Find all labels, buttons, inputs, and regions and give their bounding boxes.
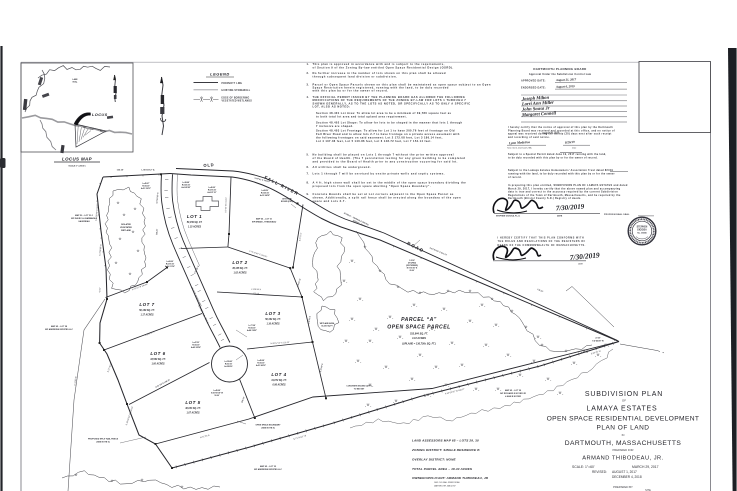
svg-text:1.07 ACRES: 1.07 ACRES <box>186 412 200 414</box>
svg-text:(SEE NOTE 9): (SEE NOTE 9) <box>96 442 109 444</box>
svg-text:August 21, 2017: August 21, 2017 <box>555 77 577 82</box>
svg-text:41,872 SQ. FT.: 41,872 SQ. FT. <box>270 379 287 382</box>
svg-text:OPEN SPACE RESIDENTIAL DEVE: OPEN SPACE RESIDENTIAL DEVELOPMENT <box>547 416 700 423</box>
svg-text:7 inclusive are shaped.: 7 inclusive are shaped. <box>316 124 354 128</box>
svg-text:with this plan by or for the o: with this plan by or for the owner of re… <box>313 89 389 93</box>
svg-text:LOT 4: LOT 4 <box>271 372 286 377</box>
svg-text:WETLAND: WETLAND <box>121 229 132 232</box>
svg-text:running with the land, to be d: running with the land, to be duly record… <box>508 172 615 175</box>
svg-text:PROPERTY LINE: PROPERTY LINE <box>222 83 243 85</box>
svg-text:5.: 5. <box>307 152 309 156</box>
svg-text:3.: 3. <box>307 82 309 86</box>
svg-text:TO BE SET: TO BE SET <box>354 389 365 391</box>
svg-text:LOT 1: LOT 1 <box>187 214 202 219</box>
svg-text:SCALE: 1"=60': SCALE: 1"=60' <box>572 465 595 469</box>
svg-text:Δ=8°21'10": Δ=8°21'10" <box>207 192 216 194</box>
svg-text:20.00': 20.00' <box>410 270 415 272</box>
svg-text:MAP 65 – LOT 28: MAP 65 – LOT 28 <box>51 325 68 328</box>
svg-text:Lot 4 137.36 feet, Lot 5 14: Lot 4 137.36 feet, Lot 5 140.86 feet, Lo… <box>316 139 432 143</box>
svg-text:43,560 SQ. FT.: 43,560 SQ. FT. <box>149 358 166 361</box>
svg-text:1.: 1. <box>307 62 309 66</box>
svg-text:LOT, ALSO AS NOTED:: LOT, ALSO AS NOTED: <box>313 105 351 109</box>
svg-text:EDGE OF BORDERING: EDGE OF BORDERING <box>222 98 250 100</box>
svg-text:All utilities shall be undergr: All utilities shall be underground. <box>313 165 372 169</box>
svg-text:and provided to the Board of H: and provided to the Board of Health prio… <box>313 159 458 163</box>
svg-text:No building shall be placed on: No building shall be placed on Lots 1 th… <box>313 152 454 156</box>
svg-text:Rd: Rd <box>100 131 102 133</box>
svg-text:ZONING DISTRICT: SINGLE RESID: ZONING DISTRICT: SINGLE RESIDENCE B <box>411 448 480 452</box>
svg-text:Fall River Road and to allow l: Fall River Road and to allow lots 2-7 to… <box>316 132 460 136</box>
svg-text:8.: 8. <box>307 180 309 184</box>
svg-text:to be duly recorded with this: to be duly recorded with this plan by or… <box>508 156 598 159</box>
svg-text:through subsequent land divisi: through subsequent land division or subd… <box>313 74 398 78</box>
svg-text:LAMAYA ESTATES: LAMAYA ESTATES <box>587 406 658 413</box>
svg-text:MAP 65 – LOT 32: MAP 65 – LOT 32 <box>260 465 277 468</box>
svg-text:11.8 ACRES: 11.8 ACRES <box>412 337 426 340</box>
svg-text:N/F BRIAN L THIBODEAU: N/F BRIAN L THIBODEAU <box>252 221 277 224</box>
svg-text:OPEN SPACE BOUNDARY: OPEN SPACE BOUNDARY <box>255 424 281 427</box>
svg-text:LOT 6: LOT 6 <box>150 351 165 356</box>
svg-text:1.16 ACRES: 1.16 ACRES <box>266 323 280 325</box>
svg-text:I HEREBY CERTIFY THAT THIS PLA: I HEREBY CERTIFY THAT THIS PLAN CONFORMS… <box>498 237 585 240</box>
svg-text:to both total lot area and tot: to both total lot area and total upland … <box>316 115 407 119</box>
svg-text:OWNER/APPLICANT: ARMAND THIBO: OWNER/APPLICANT: ARMAND THIBODEAU, JR <box>412 476 489 480</box>
svg-text:of the Board of Health. (The: of the Board of Health. (The 7 percolati… <box>313 156 466 160</box>
svg-text:N/F ANDREWS ESTATES LLC: N/F ANDREWS ESTATES LLC <box>45 328 74 331</box>
svg-text:OVERLAY DISTRICT: NONE: OVERLAY DISTRICT: NONE <box>412 458 456 462</box>
svg-text:OPEN SPACE PARCEL: OPEN SPACE PARCEL <box>387 325 451 331</box>
svg-text:Δ=14°11'06": Δ=14°11'06" <box>165 265 175 268</box>
svg-text:7.: 7. <box>307 171 309 175</box>
svg-text:AUGUST 1, 2017: AUGUST 1, 2017 <box>612 470 637 474</box>
svg-text:Δ=228°50': Δ=228°50' <box>224 366 233 368</box>
svg-text:DATE: DATE <box>557 215 563 218</box>
svg-text:the following frontages on sai: the following frontages on said easement… <box>316 136 443 140</box>
svg-text:DEEDS OF THE COMMONWEALTH OF M: DEEDS OF THE COMMONWEALTH OF MASSACHUSET… <box>498 244 586 247</box>
svg-text:50,362 SQ. FT.: 50,362 SQ. FT. <box>265 319 281 321</box>
svg-text:GIOIOSA: GIOIOSA <box>637 228 647 231</box>
svg-text:SCALE 1"=2000'±: SCALE 1"=2000'± <box>68 165 86 168</box>
svg-text:1.00 ACRES: 1.00 ACRES <box>151 363 165 365</box>
svg-text:VEGETATED WETLANDS: VEGETATED WETLANDS <box>222 100 253 103</box>
svg-text:L 203.35' A: L 203.35' A <box>251 288 262 291</box>
svg-text:I hereby certify that the noti: I hereby certify that the notice of appr… <box>508 126 613 129</box>
svg-text:and recording of said notice.: and recording of said notice. <box>508 136 550 139</box>
svg-text:9.: 9. <box>307 192 309 196</box>
svg-text:Regulations of the Town of Dar: Regulations of the Town of Dartmouth, Ma… <box>508 194 621 197</box>
svg-text:LOT 3: LOT 3 <box>265 311 280 316</box>
svg-text:IN: IN <box>622 433 625 437</box>
svg-text:6.: 6. <box>307 165 309 169</box>
svg-text:Δ=12°04'38": Δ=12°04'38" <box>260 194 270 197</box>
svg-text:1.15 ACRES: 1.15 ACRES <box>188 226 202 228</box>
svg-text:Δ=6°49'08": Δ=6°49'08" <box>181 186 190 189</box>
svg-text:45,105 SQ. FT.: 45,105 SQ. FT. <box>231 267 248 270</box>
svg-text:MAP 65 – LOT 31: MAP 65 – LOT 31 <box>256 218 273 221</box>
svg-text:1.02 ACRES: 1.02 ACRES <box>233 272 247 274</box>
svg-text:TOTAL PARCEL AREA – 18.44 A: TOTAL PARCEL AREA – 18.44 ACRES <box>412 467 473 471</box>
svg-text:Approval Under the Subdivision: Approval Under the Subdivision Control L… <box>529 73 591 76</box>
svg-text:Section 48.402 Lot Shape: To a: Section 48.402 Lot Shape: To allow for l… <box>316 121 463 125</box>
svg-text:GAUDREAU: GAUDREAU <box>78 220 90 223</box>
svg-text:MARCH 29, 2017: MARCH 29, 2017 <box>632 465 659 469</box>
svg-text:1.17 ACRES: 1.17 ACRES <box>140 314 154 316</box>
svg-text:CONCRETE BOUND (TYP.): CONCRETE BOUND (TYP.) <box>346 386 372 388</box>
svg-text:N/F ANDREWS ESTATES LLC: N/F ANDREWS ESTATES LLC <box>254 468 283 471</box>
svg-text:shown. Additionally, a split: shown. Additionally, a split rail fence … <box>313 196 462 200</box>
svg-text:MAP 50 – LOT 33-1: MAP 50 – LOT 33-1 <box>75 214 94 217</box>
svg-text:LOT 7: LOT 7 <box>139 302 154 307</box>
svg-text:DATE: DATE <box>578 262 584 265</box>
svg-text:REVISED:: REVISED: <box>592 470 607 474</box>
svg-text:LAND ASSESSORS MAP 65 – LOTS: LAND ASSESSORS MAP 65 – LOTS 29, 30 <box>412 439 479 443</box>
svg-text:THE RULES AND REGULATIONS OF T: THE RULES AND REGULATIONS OF THE REGISTE… <box>498 240 586 243</box>
svg-text:LOT 2: LOT 2 <box>232 260 247 265</box>
svg-text:STEPHEN: STEPHEN <box>637 226 648 228</box>
svg-text:VEGETATED: VEGETATED <box>120 226 132 229</box>
svg-text:ISOLATED: ISOLATED <box>121 223 132 226</box>
svg-text:No. 35556: No. 35556 <box>637 232 647 234</box>
svg-text:L 96°41'12" A: L 96°41'12" A <box>141 168 155 171</box>
svg-text:Town Clerk, Dartmouth, MA: Town Clerk, Dartmouth, MA <box>507 147 532 150</box>
svg-text:50,159 SQ. FT.: 50,159 SQ. FT. <box>187 222 203 224</box>
svg-text:APPROVED DATE:: APPROVED DATE: <box>521 80 546 83</box>
svg-text:OLD: OLD <box>203 162 214 168</box>
svg-text:Δ=51°39'33": Δ=51°39'33" <box>141 188 151 190</box>
svg-text:2.: 2. <box>307 71 309 75</box>
svg-text:appeal was received during the: appeal was received during the twenty (2… <box>508 133 612 136</box>
svg-text:of record.: of record. <box>508 177 522 179</box>
svg-text:N/F RICHARD E NOYER JR: N/F RICHARD E NOYER JR <box>500 392 526 395</box>
svg-text:MAP 65 – LOT 29: MAP 65 – LOT 29 <box>505 389 522 392</box>
svg-text:513,844 SQ. FT.: 513,844 SQ. FT. <box>410 333 428 336</box>
svg-text:4.: 4. <box>307 95 309 99</box>
svg-text:August 6, 2019: August 6, 2019 <box>555 84 575 89</box>
svg-text:Subject to a Special Permit da: Subject to a Special Permit dated June 1… <box>508 153 606 156</box>
svg-text:March 29, 2017, I hereby certi: March 29, 2017, I hereby certify that th… <box>508 187 621 190</box>
svg-text:DARTMOUTH, MASSACHUSETTS: DARTMOUTH, MASSACHUSETTS <box>565 440 682 447</box>
svg-text:LOT 5: LOT 5 <box>185 400 200 405</box>
svg-text:55,291 SQ FT: 55,291 SQ FT <box>321 326 333 328</box>
svg-text:N/F DAVID S & BARBARA J: N/F DAVID S & BARBARA J <box>71 217 97 220</box>
svg-text:S 4°45'28" W: S 4°45'28" W <box>592 339 604 342</box>
svg-text:proposed lots from the open sp: proposed lots from the open space abutti… <box>313 184 432 188</box>
svg-text:STEPHEN GIOIOSA, P.L.S.: STEPHEN GIOIOSA, P.L.S. <box>496 215 521 218</box>
svg-text:50.00': 50.00' <box>215 395 220 397</box>
svg-text:In preparing this plan entitle: In preparing this plan entitled, SUBDIVI… <box>508 184 628 187</box>
svg-text:1062 OLD FALL RIVER ROAD: 1062 OLD FALL RIVER ROAD <box>434 481 460 484</box>
svg-text:ARMAND THIBODEAU, JR.: ARMAND THIBODEAU, JR. <box>582 456 664 462</box>
svg-text:DECEMBER 4, 2018: DECEMBER 4, 2018 <box>612 475 642 479</box>
svg-text:EXISTING STONEWALL: EXISTING STONEWALL <box>222 89 251 92</box>
svg-text:50,169 SQ. FT.: 50,169 SQ. FT. <box>139 310 155 312</box>
svg-text:Lots 1 through 7 will be servi: Lots 1 through 7 will be serviced by ons… <box>313 171 445 175</box>
svg-text:PLAN OF LAND: PLAN OF LAND <box>597 425 650 432</box>
svg-text:& ANN E NOYER: & ANN E NOYER <box>505 395 521 398</box>
svg-text:PARCEL “A”: PARCEL “A” <box>401 317 437 323</box>
svg-text:DARTMOUTH, MA 02747: DARTMOUTH, MA 02747 <box>434 484 456 487</box>
svg-text:(UPLAND = 130,736± SQ. FT.): (UPLAND = 130,736± SQ. FT.) <box>402 343 436 346</box>
svg-text:Fall: Fall <box>91 129 94 131</box>
svg-text:Concrete Bounds shall be set a: Concrete Bounds shall be set at Lot corn… <box>313 192 454 196</box>
svg-text:LOCUS MAP: LOCUS MAP <box>62 157 92 162</box>
svg-text:172.08': 172.08' <box>253 293 260 295</box>
svg-text:PROPOSED SPLIT RAIL FENCE: PROPOSED SPLIT RAIL FENCE <box>88 438 119 441</box>
svg-text:27.39': 27.39' <box>595 338 601 340</box>
svg-text:40,003 SQ. FT.: 40,003 SQ. FT. <box>184 407 201 410</box>
svg-text:PREPARED BY: PREPARED BY <box>613 485 633 489</box>
svg-text:Δ=88°19'42": Δ=88°19'42" <box>247 329 257 332</box>
svg-text:LOCUS: LOCUS <box>92 112 108 117</box>
svg-text:Δ=51°40'00": Δ=51°40'00" <box>256 364 266 367</box>
svg-text:PROFESSIONAL SEAL: PROFESSIONAL SEAL <box>604 213 630 216</box>
svg-text:SUBDIVISION PLAN: SUBDIVISION PLAN <box>585 391 663 398</box>
svg-text:NOQ.: NOQ. <box>73 81 78 83</box>
svg-text:Planning Board was received an: Planning Board was received and recorded… <box>508 129 615 132</box>
svg-text:130.18': 130.18' <box>117 169 124 171</box>
svg-text:Old: Old <box>83 127 86 129</box>
svg-text:0.96 ACRES: 0.96 ACRES <box>272 384 286 386</box>
svg-text:ENDORSED DATE:: ENDORSED DATE: <box>521 86 546 89</box>
svg-text:Section 48.403 Lot Frontage: T: Section 48.403 Lot Frontage: To allow fo… <box>316 128 455 132</box>
svg-text:LEGEND: LEGEND <box>210 72 230 77</box>
svg-text:PREPARED FOR: PREPARED FOR <box>612 448 633 452</box>
svg-text:BOUND (FND): BOUND (FND) <box>281 201 293 203</box>
svg-text:Δ=45°05'24": Δ=45°05'24" <box>191 346 201 349</box>
svg-text:Dartmouth (Bristol County S.D.: Dartmouth (Bristol County S.D.) Registry… <box>508 197 582 200</box>
svg-text:Section 48.401 Lot Area: To al: Section 48.401 Lot Area: To allow lot ar… <box>316 111 452 115</box>
svg-text:OF: OF <box>622 399 626 403</box>
svg-text:Subject to the Lamaya Estates: Subject to the Lamaya Estates Homeowners… <box>508 169 614 172</box>
svg-text:DARTMOUTH PLANNING BOARD: DARTMOUTH PLANNING BOARD <box>533 67 586 71</box>
svg-text:of Section 9 of the Zoning By-: of Section 9 of the Zoning By-law entitl… <box>313 65 454 69</box>
svg-text:8/26/19: 8/26/19 <box>565 140 575 145</box>
svg-text:data is true and correct to th: data is true and correct to the accuracy… <box>508 191 618 194</box>
svg-text:(SEE NOTE 8): (SEE NOTE 8) <box>261 428 274 430</box>
svg-text:space and Lots 2-7.: space and Lots 2-7. <box>313 199 347 203</box>
svg-text:A 4 ft. high stone wall shall: A 4 ft. high stone wall shall be set in … <box>313 180 467 184</box>
